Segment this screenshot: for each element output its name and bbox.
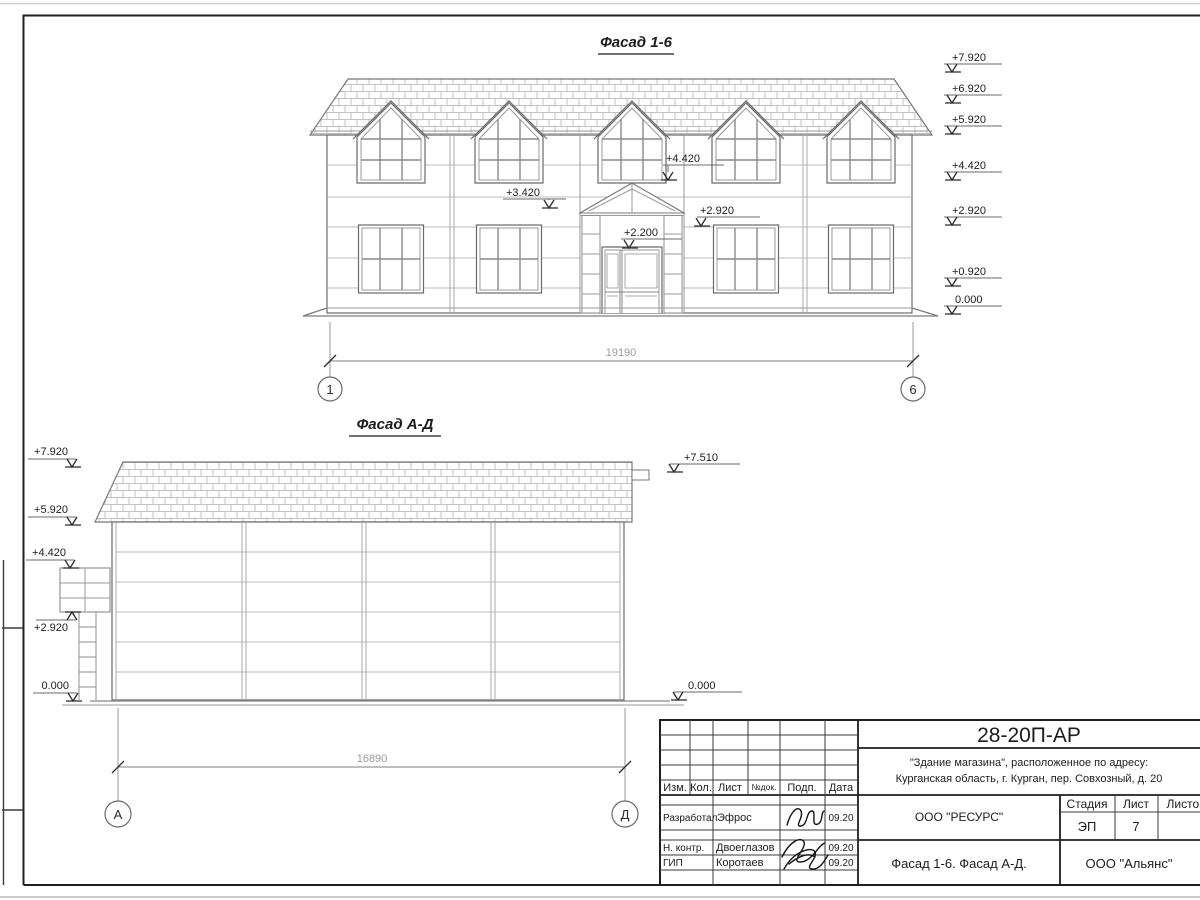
roof-side: [95, 462, 632, 522]
elevation-mark-label: +6.920: [952, 83, 986, 95]
date-value: 09.20: [828, 813, 853, 824]
signature: [787, 809, 824, 826]
sheet-label: Лист: [1123, 797, 1150, 811]
person-name: Коротаев: [716, 857, 764, 869]
elevation-mark-label: +0.920: [952, 266, 986, 278]
elevation-mark-label: +4.420: [32, 547, 66, 559]
elevation-mark-label: 0.000: [688, 680, 716, 692]
elevation-mark-label: +7.920: [952, 52, 986, 64]
project-address-line2: Курганская область, г. Курган, пер. Совх…: [896, 773, 1163, 785]
roof-vent-pipe: [632, 470, 649, 480]
axis-label-1: 1: [326, 382, 333, 397]
side-wall: [112, 522, 624, 700]
designer-organization: ООО "РЕСУРС": [915, 810, 1003, 824]
door-opening: [602, 247, 662, 313]
dimension-label: 19190: [606, 347, 637, 359]
axis-label-a: А: [114, 807, 123, 822]
elevation-mark-label: +7.510: [684, 452, 718, 464]
drawing-canvas: Фасад 1-6: [0, 0, 1200, 900]
dimension-a-d: 16890 А Д: [105, 708, 638, 827]
elevation-marks-side-right: +7.510 0.000: [667, 452, 742, 700]
elevation-marks-right: +7.920 +6.920 +5.920 +4.420 +2.920 +0.92…: [944, 52, 1002, 314]
sheet-title: Фасад 1-6. Фасад А-Д.: [891, 856, 1027, 871]
sheets-label: Листов: [1167, 797, 1200, 811]
role-label: ГИП: [663, 858, 683, 869]
elevation-mark-label: +5.920: [34, 504, 68, 516]
role-label: Н. контр.: [663, 843, 704, 854]
facade-a-d-drawing: Фасад А-Д +7.920 +5.920 +4.420 +2.920 0.…: [26, 416, 742, 827]
elevation-mark-label: +5.920: [952, 114, 986, 126]
dimension-label: 16890: [357, 753, 388, 765]
drawing-sheet: Фасад 1-6: [0, 0, 1200, 900]
elevation-mark-label: +3.420: [506, 187, 540, 199]
quoin-strip-right: [664, 216, 682, 314]
first-floor-window: [477, 225, 542, 293]
elevation-mark-label: 0.000: [41, 680, 69, 692]
axis-label-6: 6: [909, 382, 916, 397]
column-header-izm: Изм.: [663, 782, 687, 794]
date-value: 09.20: [828, 843, 853, 854]
person-name: Эфрос: [717, 812, 752, 824]
elevation-mark-label: +2.200: [624, 227, 658, 239]
role-label: Разработал: [663, 812, 718, 824]
signature: [782, 840, 828, 870]
first-floor-window: [714, 225, 779, 293]
facade-1-6-drawing: Фасад 1-6: [303, 34, 1002, 401]
stage-value: ЭП: [1078, 819, 1097, 834]
elevation-mark-label: +4.420: [952, 160, 986, 172]
dimension-1-6: 19190 1 6: [318, 322, 925, 401]
facade-a-d-title: Фасад А-Д: [357, 416, 434, 433]
elevation-mark-label: +4.420: [666, 153, 700, 165]
sheet-number-value: 7: [1132, 819, 1139, 834]
column-header-list: Лист: [718, 782, 742, 794]
wall-ladder: [79, 612, 96, 700]
quoin-strip-left: [582, 216, 600, 314]
stage-label: Стадия: [1067, 797, 1108, 811]
elevation-mark-label: +7.920: [34, 446, 68, 458]
column-header-ndok: №док.: [752, 782, 777, 792]
project-address-line1: "Здание магазина", расположенное по адре…: [910, 757, 1148, 769]
elevation-mark-label: +2.920: [700, 205, 734, 217]
first-floor-window: [359, 225, 424, 293]
axis-label-d: Д: [621, 807, 630, 822]
facade-1-6-title: Фасад 1-6: [600, 34, 673, 51]
elevation-mark-label: 0.000: [955, 294, 983, 306]
title-block: 28-20П-АР "Здание магазина", расположенн…: [660, 720, 1200, 885]
binding-margin-lines: [2, 560, 23, 885]
customer-organization: ООО "Альянс": [1086, 856, 1173, 871]
document-number: 28-20П-АР: [977, 724, 1081, 747]
column-header-data: Дата: [829, 782, 854, 794]
date-value: 09.20: [828, 858, 853, 869]
elevation-mark-label: +2.920: [34, 622, 68, 634]
person-name: Двоеглазов: [716, 842, 775, 854]
column-header-podp: Подп.: [787, 782, 816, 794]
entrance-door: [602, 247, 662, 313]
elevation-mark-label: +2.920: [952, 205, 986, 217]
first-floor-window: [829, 225, 894, 293]
column-header-kol: Кол.: [690, 782, 712, 794]
